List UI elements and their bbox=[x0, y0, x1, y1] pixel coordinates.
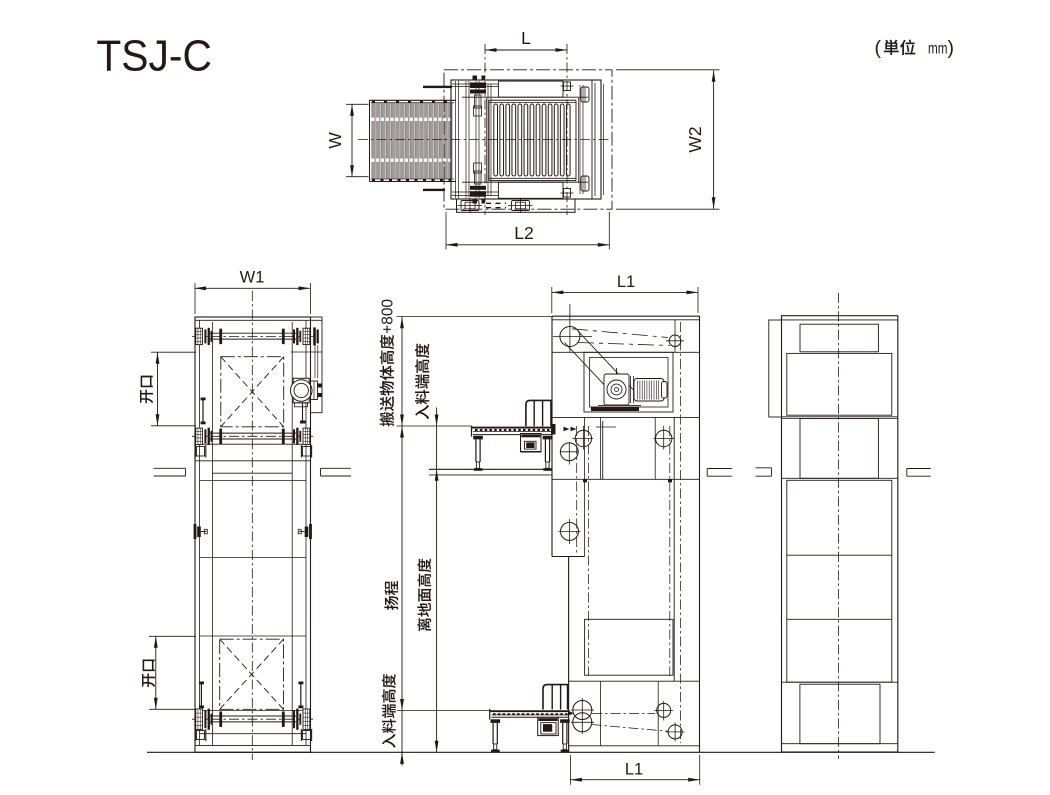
svg-text:(: ( bbox=[875, 37, 882, 59]
svg-text:mm: mm bbox=[928, 41, 948, 58]
svg-text:L1: L1 bbox=[617, 273, 635, 291]
svg-text:W: W bbox=[325, 132, 345, 149]
svg-text:W2: W2 bbox=[685, 126, 705, 152]
svg-text:L: L bbox=[521, 28, 531, 48]
svg-text:L2: L2 bbox=[514, 223, 533, 243]
svg-text:): ) bbox=[948, 37, 955, 59]
svg-text:+800: +800 bbox=[380, 299, 397, 334]
svg-text:TSJ-C: TSJ-C bbox=[96, 33, 211, 81]
svg-text:L1: L1 bbox=[625, 761, 643, 779]
svg-text:W1: W1 bbox=[240, 269, 265, 287]
